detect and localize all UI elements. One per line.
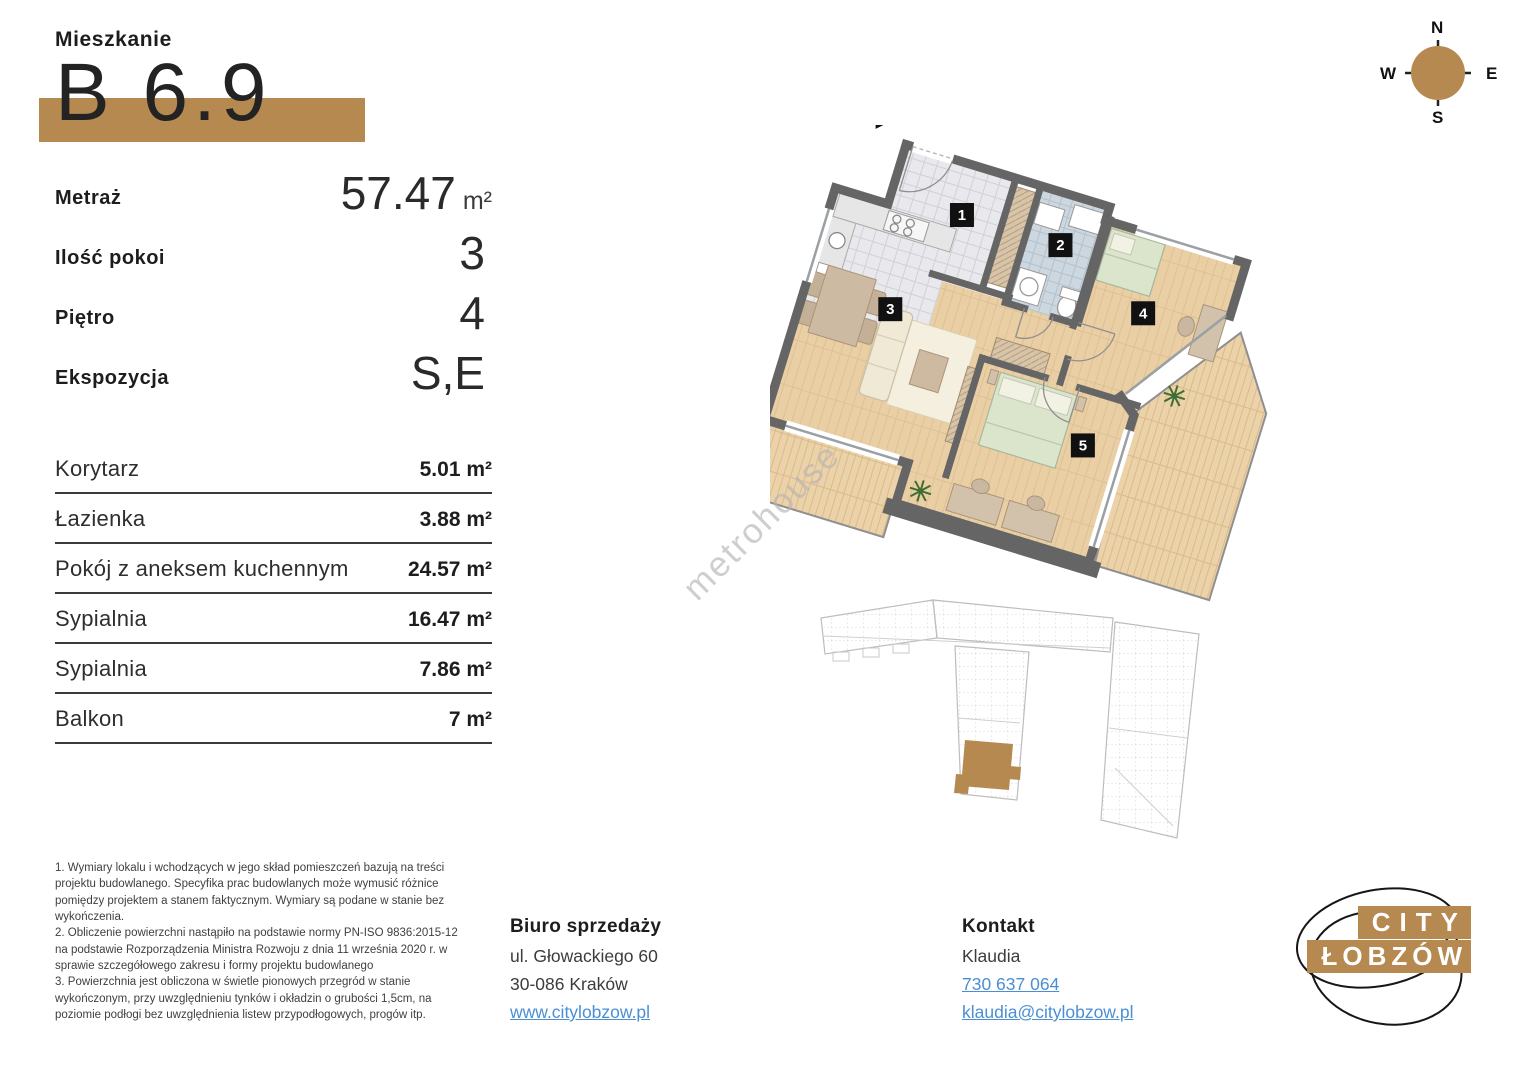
- unit-number: B 6.9: [55, 52, 271, 134]
- table-row: Pokój z aneksem kuchennym 24.57 m²: [55, 544, 492, 594]
- room-number-badge: 2: [1048, 233, 1072, 257]
- room-area: 5.01 m²: [420, 458, 492, 482]
- compass-west-label: W: [1380, 64, 1396, 84]
- legal-footnotes: 1. Wymiary lokalu i wchodzących w jego s…: [55, 860, 459, 1023]
- room-name: Łazienka: [55, 506, 145, 532]
- stat-value: 4: [459, 290, 492, 336]
- stat-label: Piętro: [55, 307, 115, 336]
- stat-label: Metraż: [55, 187, 121, 216]
- unit-number-block: B 6.9: [55, 52, 271, 134]
- stat-label: Ekspozycja: [55, 367, 169, 396]
- svg-text:3: 3: [886, 301, 894, 318]
- stat-value-number: 4: [459, 287, 485, 339]
- stat-pokoje: Ilość pokoi 3: [55, 218, 492, 276]
- svg-text:4: 4: [1139, 305, 1148, 322]
- stat-metraz: Metraż 57.47m²: [55, 158, 492, 216]
- website-link[interactable]: www.citylobzow.pl: [510, 1002, 650, 1023]
- compass-south-label: S: [1432, 108, 1443, 128]
- building-location-plan: [815, 588, 1215, 850]
- stat-value-number: 3: [459, 227, 485, 279]
- email-link[interactable]: klaudia@citylobzow.pl: [962, 1002, 1133, 1023]
- room-area: 7.86 m²: [420, 658, 492, 682]
- footnote-1: 1. Wymiary lokalu i wchodzących w jego s…: [55, 860, 459, 925]
- stat-label: Ilość pokoi: [55, 247, 165, 276]
- footnote-3: 3. Powierzchnia jest obliczona w świetle…: [55, 974, 459, 1023]
- stat-value: S,E: [411, 350, 492, 396]
- room-area: 16.47 m²: [408, 608, 492, 632]
- room-number-badge: 3: [878, 297, 902, 321]
- table-row: Sypialnia 7.86 m²: [55, 644, 492, 694]
- table-row: Sypialnia 16.47 m²: [55, 594, 492, 644]
- logo-word-city: CITY: [1358, 906, 1471, 939]
- entrance-arrow-icon: [876, 125, 896, 129]
- sales-office-block: Biuro sprzedaży ul. Głowackiego 60 30-08…: [510, 916, 661, 1030]
- city-lobzow-logo: CITY ŁOBZÓW: [1278, 866, 1528, 1061]
- stat-value-number: S,E: [411, 347, 485, 399]
- contact-block: Kontakt Klaudia 730 637 064 klaudia@city…: [962, 916, 1133, 1030]
- compass-rose-icon: N E S W: [1378, 16, 1503, 128]
- sales-office-title: Biuro sprzedaży: [510, 916, 661, 938]
- table-row: Korytarz 5.01 m²: [55, 444, 492, 494]
- stat-ekspozycja: Ekspozycja S,E: [55, 338, 492, 396]
- logo-word-lobzow: ŁOBZÓW: [1307, 940, 1471, 973]
- room-name: Korytarz: [55, 456, 139, 482]
- table-row: Łazienka 3.88 m²: [55, 494, 492, 544]
- stat-value: 3: [459, 230, 492, 276]
- room-area-table: Korytarz 5.01 m² Łazienka 3.88 m² Pokój …: [55, 444, 492, 744]
- sales-office-city: 30-086 Kraków: [510, 974, 661, 995]
- room-area: 24.57 m²: [408, 558, 492, 582]
- compass-east-label: E: [1486, 64, 1497, 84]
- room-number-badge: 4: [1131, 301, 1155, 325]
- stat-value-unit: m²: [463, 187, 492, 215]
- floor-plan-drawing: 1 2 3 4 5: [770, 125, 1270, 610]
- room-name: Sypialnia: [55, 656, 147, 682]
- phone-link[interactable]: 730 637 064: [962, 974, 1059, 995]
- stat-value-number: 57.47: [341, 167, 456, 219]
- room-number-badge: 1: [950, 203, 974, 227]
- apartment-card-sheet: Mieszkanie B 6.9 Metraż 57.47m² Ilość po…: [0, 0, 1528, 1080]
- room-area: 3.88 m²: [420, 508, 492, 532]
- compass-north-label: N: [1431, 18, 1443, 38]
- building-outline: [821, 600, 1199, 838]
- footnote-2: 2. Obliczenie powierzchni nastąpiło na p…: [55, 925, 459, 974]
- room-name: Balkon: [55, 706, 124, 732]
- stat-value: 57.47m²: [341, 170, 492, 216]
- room-number-badge: 5: [1071, 433, 1095, 457]
- svg-text:1: 1: [958, 207, 966, 224]
- room-name: Pokój z aneksem kuchennym: [55, 556, 349, 582]
- stat-pietro: Piętro 4: [55, 278, 492, 336]
- sales-office-street: ul. Głowackiego 60: [510, 946, 661, 967]
- svg-text:2: 2: [1056, 237, 1064, 254]
- table-row: Balkon 7 m²: [55, 694, 492, 744]
- svg-text:5: 5: [1079, 437, 1087, 454]
- room-name: Sypialnia: [55, 606, 147, 632]
- room-area: 7 m²: [449, 708, 492, 732]
- contact-name: Klaudia: [962, 946, 1133, 967]
- contact-title: Kontakt: [962, 916, 1133, 938]
